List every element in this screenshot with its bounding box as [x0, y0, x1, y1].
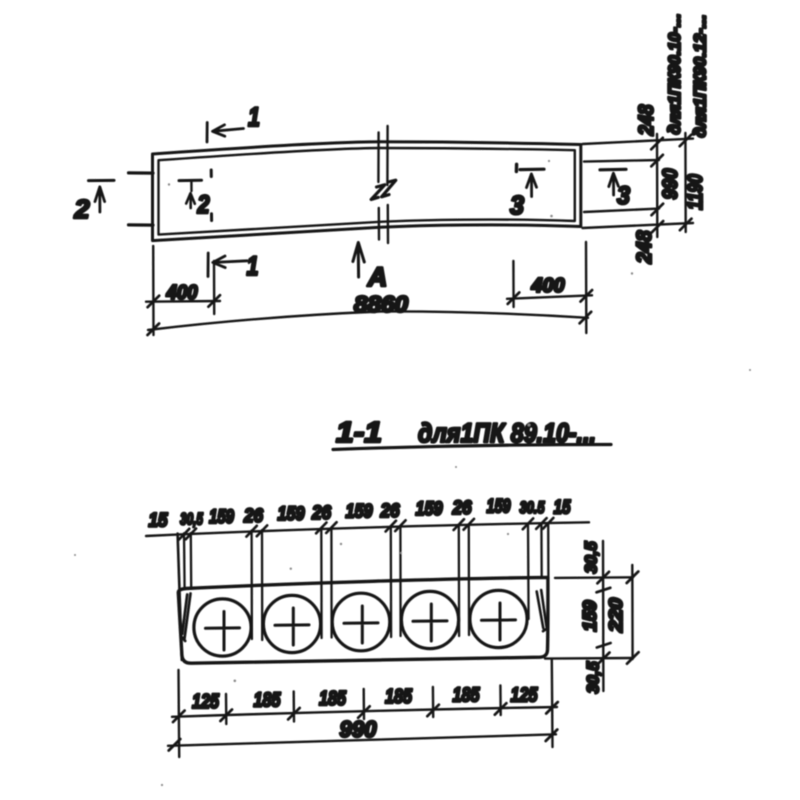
- svg-text:248: 248: [633, 230, 656, 264]
- svg-text:30,5: 30,5: [180, 510, 203, 529]
- svg-text:125: 125: [192, 691, 220, 713]
- svg-text:1: 1: [247, 251, 259, 281]
- svg-text:1190: 1190: [684, 174, 707, 210]
- svg-text:159: 159: [580, 601, 600, 632]
- svg-text:185: 185: [254, 690, 282, 712]
- svg-text:159: 159: [278, 504, 305, 525]
- svg-text:159: 159: [209, 507, 234, 528]
- svg-text:для1ПК90.12-...: для1ПК90.12-...: [691, 15, 710, 138]
- svg-text:159: 159: [416, 499, 443, 520]
- svg-text:3: 3: [510, 190, 525, 220]
- svg-text:185: 185: [385, 686, 413, 708]
- svg-text:30.5: 30.5: [520, 498, 545, 517]
- svg-text:400: 400: [531, 275, 565, 297]
- svg-text:26: 26: [380, 501, 400, 522]
- svg-text:159: 159: [487, 497, 511, 518]
- svg-text:990: 990: [659, 168, 682, 199]
- svg-text:248: 248: [635, 104, 658, 136]
- svg-text:8860: 8860: [354, 291, 408, 317]
- svg-text:159: 159: [346, 502, 373, 523]
- svg-text:26: 26: [311, 503, 331, 524]
- svg-text:A: A: [367, 262, 388, 292]
- svg-text:для1ПК90.10-...: для1ПК90.10-...: [665, 14, 684, 135]
- svg-text:185: 185: [453, 685, 481, 707]
- svg-text:15: 15: [149, 511, 168, 532]
- svg-text:2: 2: [197, 191, 210, 219]
- svg-text:1: 1: [248, 102, 260, 132]
- svg-text:26: 26: [452, 498, 472, 519]
- svg-text:400: 400: [166, 282, 198, 304]
- svg-text:3: 3: [617, 182, 630, 210]
- svg-text:220: 220: [606, 598, 626, 633]
- svg-text:15: 15: [554, 498, 571, 519]
- svg-text:30,5: 30,5: [582, 541, 601, 574]
- svg-text:990: 990: [340, 716, 377, 742]
- svg-text:185: 185: [319, 688, 347, 710]
- svg-text:30,5: 30,5: [584, 661, 603, 694]
- svg-text:26: 26: [243, 506, 263, 527]
- svg-text:1-1: 1-1: [336, 417, 382, 449]
- svg-text:125: 125: [511, 685, 539, 707]
- svg-text:2: 2: [73, 194, 90, 224]
